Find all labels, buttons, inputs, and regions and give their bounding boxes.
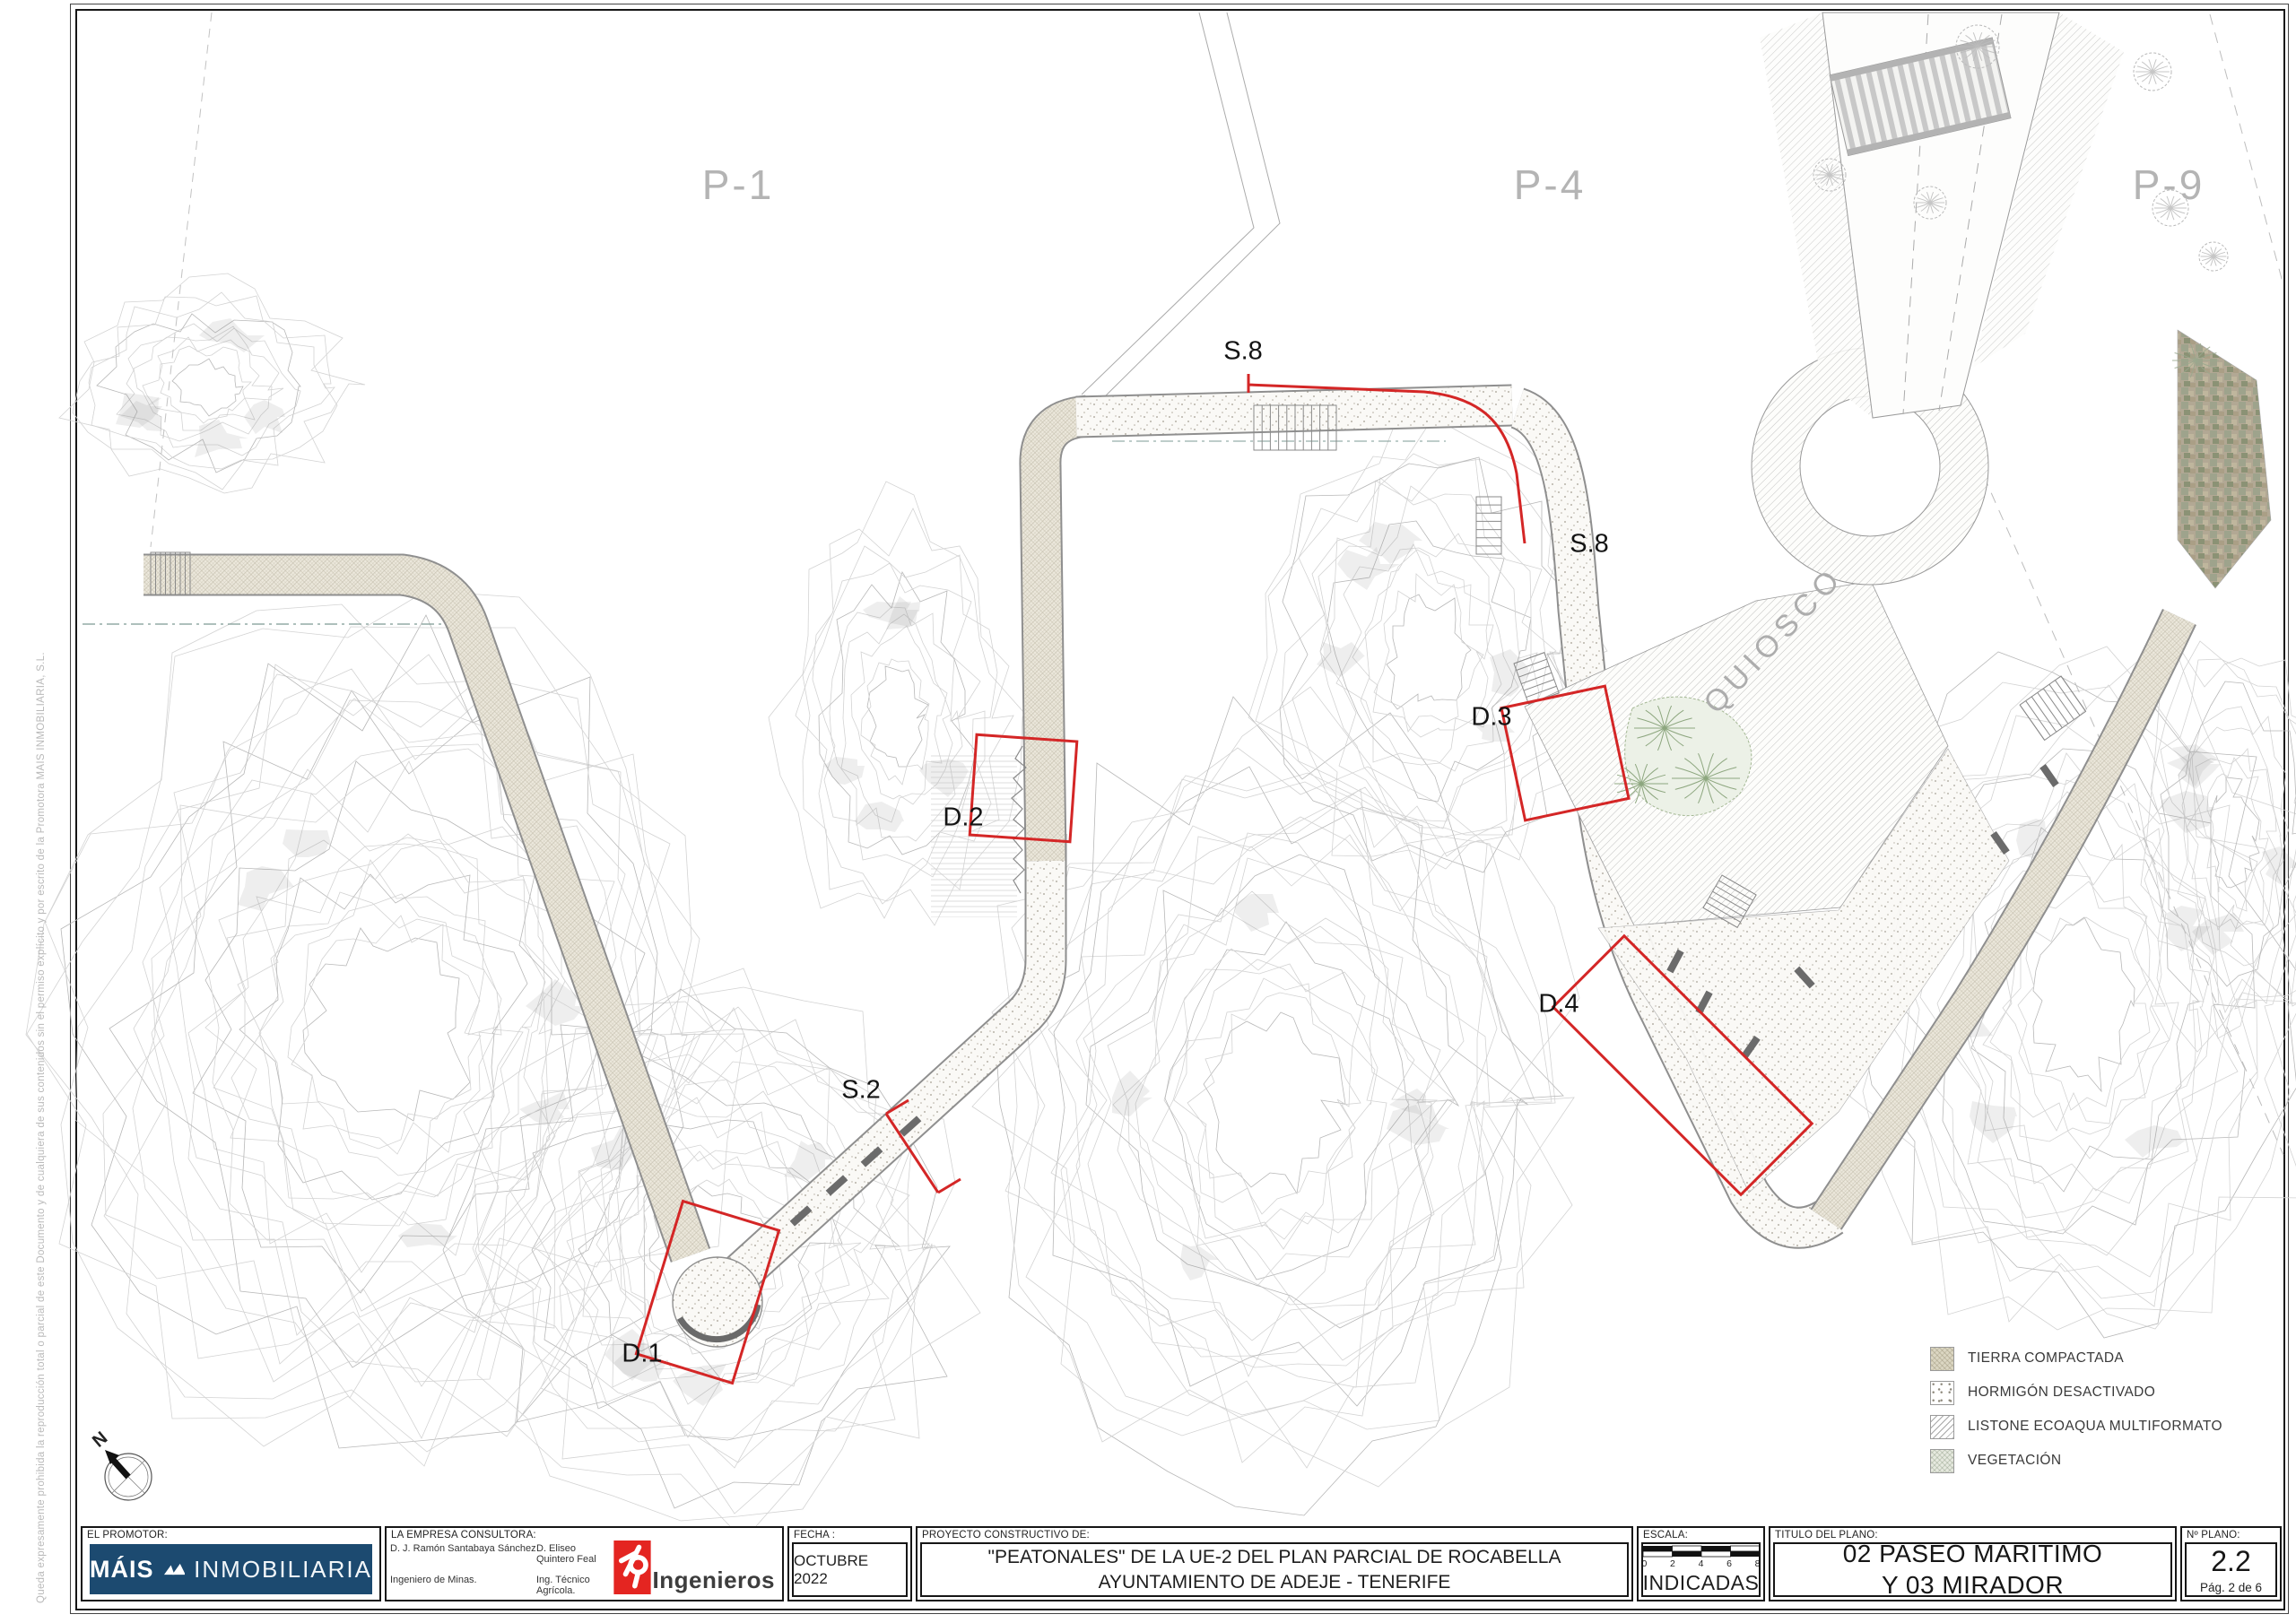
- copyright-vertical-text: Queda expresamente prohibida la reproduc…: [36, 97, 47, 1603]
- parcel-label-p4: P-4: [1514, 161, 1587, 209]
- promotor-header: EL PROMOTOR:: [83, 1528, 379, 1541]
- scale-tick: 4: [1699, 1558, 1704, 1569]
- proyecto-header: PROYECTO CONSTRUCTIVO DE:: [918, 1528, 1631, 1541]
- ingenieros-wordmark: Ingenieros: [653, 1567, 775, 1594]
- mais-mountain-icon: [163, 1556, 186, 1583]
- promenade-top-arm: [1076, 405, 1512, 417]
- legend-label: HORMIGÓN DESACTIVADO: [1968, 1384, 2155, 1401]
- detail-label-d2: D.2: [943, 803, 983, 833]
- fecha-header: FECHA :: [789, 1528, 910, 1541]
- legend-item-tierra: TIERRA COMPACTADA: [1930, 1341, 2222, 1376]
- ingenieros-logo: Ingenieros: [613, 1541, 782, 1601]
- title-block: EL PROMOTOR: MÁIS INMOBILIARIA LA EMPRES…: [81, 1526, 2282, 1601]
- escala-cell: ESCALA: 0 2: [1637, 1526, 1765, 1601]
- consultora-title-2: Ing. Técnico Agrícola.: [536, 1575, 612, 1596]
- consultora-header: LA EMPRESA CONSULTORA:: [387, 1528, 782, 1541]
- plan-sheet: P-1 P-4 P-9 QUIOSCO S.8 S.8 S.2 D.1 D.2 …: [0, 0, 2296, 1623]
- consultora-name-2: D. Eliseo Quintero Feal: [536, 1543, 612, 1565]
- scale-tick: 6: [1726, 1558, 1732, 1569]
- fecha-cell: FECHA : OCTUBRE 2022: [787, 1526, 912, 1601]
- detail-label-d3: D.3: [1471, 703, 1511, 733]
- consultora-name-1: D. J. Ramón Santabaya Sánchez: [390, 1543, 536, 1565]
- escala-value: INDICADAS: [1643, 1571, 1760, 1595]
- vegetacion-swatch-icon: [1930, 1449, 1954, 1473]
- scale-tick: 0: [1642, 1558, 1648, 1569]
- titulo-line-2: Y 03 MIRADOR: [1882, 1570, 2064, 1598]
- hormigon-swatch-icon: [1930, 1381, 1954, 1405]
- ingenieros-logo-icon: [613, 1541, 651, 1594]
- numero-plano-header: Nº PLANO:: [2182, 1528, 2280, 1541]
- legend-item-vegetacion: VEGETACIÓN: [1930, 1444, 2222, 1478]
- legend-label: VEGETACIÓN: [1968, 1453, 2061, 1469]
- scale-tick: 2: [1670, 1558, 1675, 1569]
- mirador-road: [1760, 13, 2124, 418]
- scale-bar: [1642, 1545, 1761, 1559]
- aerial-photo-patch: [2178, 330, 2271, 588]
- mais-inmobiliaria-logo: MÁIS INMOBILIARIA: [90, 1544, 372, 1594]
- scale-bar-ticks: 0 2 4 6 8: [1642, 1558, 1761, 1569]
- titulo-cell: TITULO DEL PLANO: 02 PASEO MARÍTIMO Y 03…: [1769, 1526, 2177, 1601]
- section-label-s2: S.2: [841, 1076, 881, 1106]
- scale-tick: 8: [1755, 1558, 1761, 1569]
- numero-plano-value: 2.2: [2211, 1545, 2250, 1578]
- legend-label: LISTONE ECOAQUA MULTIFORMATO: [1968, 1419, 2222, 1435]
- parcel-label-p1: P-1: [702, 161, 775, 209]
- section-label-s8-right: S.8: [1570, 530, 1609, 560]
- tierra-swatch-icon: [1930, 1347, 1954, 1371]
- mais-brand-text: MÁIS: [90, 1556, 154, 1584]
- legend-item-listone: LISTONE ECOAQUA MULTIFORMATO: [1930, 1410, 2222, 1444]
- proyecto-line-2: AYUNTAMIENTO DE ADEJE - TENERIFE: [1099, 1570, 1451, 1594]
- proyecto-line-1: "PEATONALES" DE LA UE-2 DEL PLAN PARCIAL…: [988, 1545, 1561, 1569]
- north-arrow-icon: [105, 1450, 152, 1500]
- fecha-value: OCTUBRE 2022: [794, 1552, 906, 1588]
- mais-brand-text-2: INMOBILIARIA: [194, 1556, 372, 1584]
- titulo-header: TITULO DEL PLANO:: [1770, 1528, 2175, 1541]
- listone-swatch-icon: [1930, 1415, 1954, 1439]
- legend-item-hormigon: HORMIGÓN DESACTIVADO: [1930, 1376, 2222, 1410]
- proyecto-cell: PROYECTO CONSTRUCTIVO DE: "PEATONALES" D…: [916, 1526, 1633, 1601]
- parcel-label-p9: P-9: [2133, 161, 2205, 209]
- consultora-title-1: Ingeniero de Minas.: [390, 1575, 536, 1596]
- escala-header: ESCALA:: [1639, 1528, 1763, 1541]
- promotor-cell: EL PROMOTOR: MÁIS INMOBILIARIA: [81, 1526, 381, 1601]
- titulo-line-1: 02 PASEO MARÍTIMO: [1843, 1542, 2103, 1570]
- consultora-cell: LA EMPRESA CONSULTORA: D. J. Ramón Santa…: [385, 1526, 784, 1601]
- numero-plano-page: Pág. 2 de 6: [2200, 1581, 2262, 1594]
- legend: TIERRA COMPACTADA HORMIGÓN DESACTIVADO L…: [1930, 1341, 2222, 1478]
- section-label-s8-top: S.8: [1223, 337, 1263, 367]
- detail-label-d1: D.1: [622, 1340, 662, 1369]
- legend-label: TIERRA COMPACTADA: [1968, 1350, 2124, 1367]
- numero-plano-cell: Nº PLANO: 2.2 Pág. 2 de 6: [2180, 1526, 2282, 1601]
- detail-label-d4: D.4: [1538, 990, 1578, 1020]
